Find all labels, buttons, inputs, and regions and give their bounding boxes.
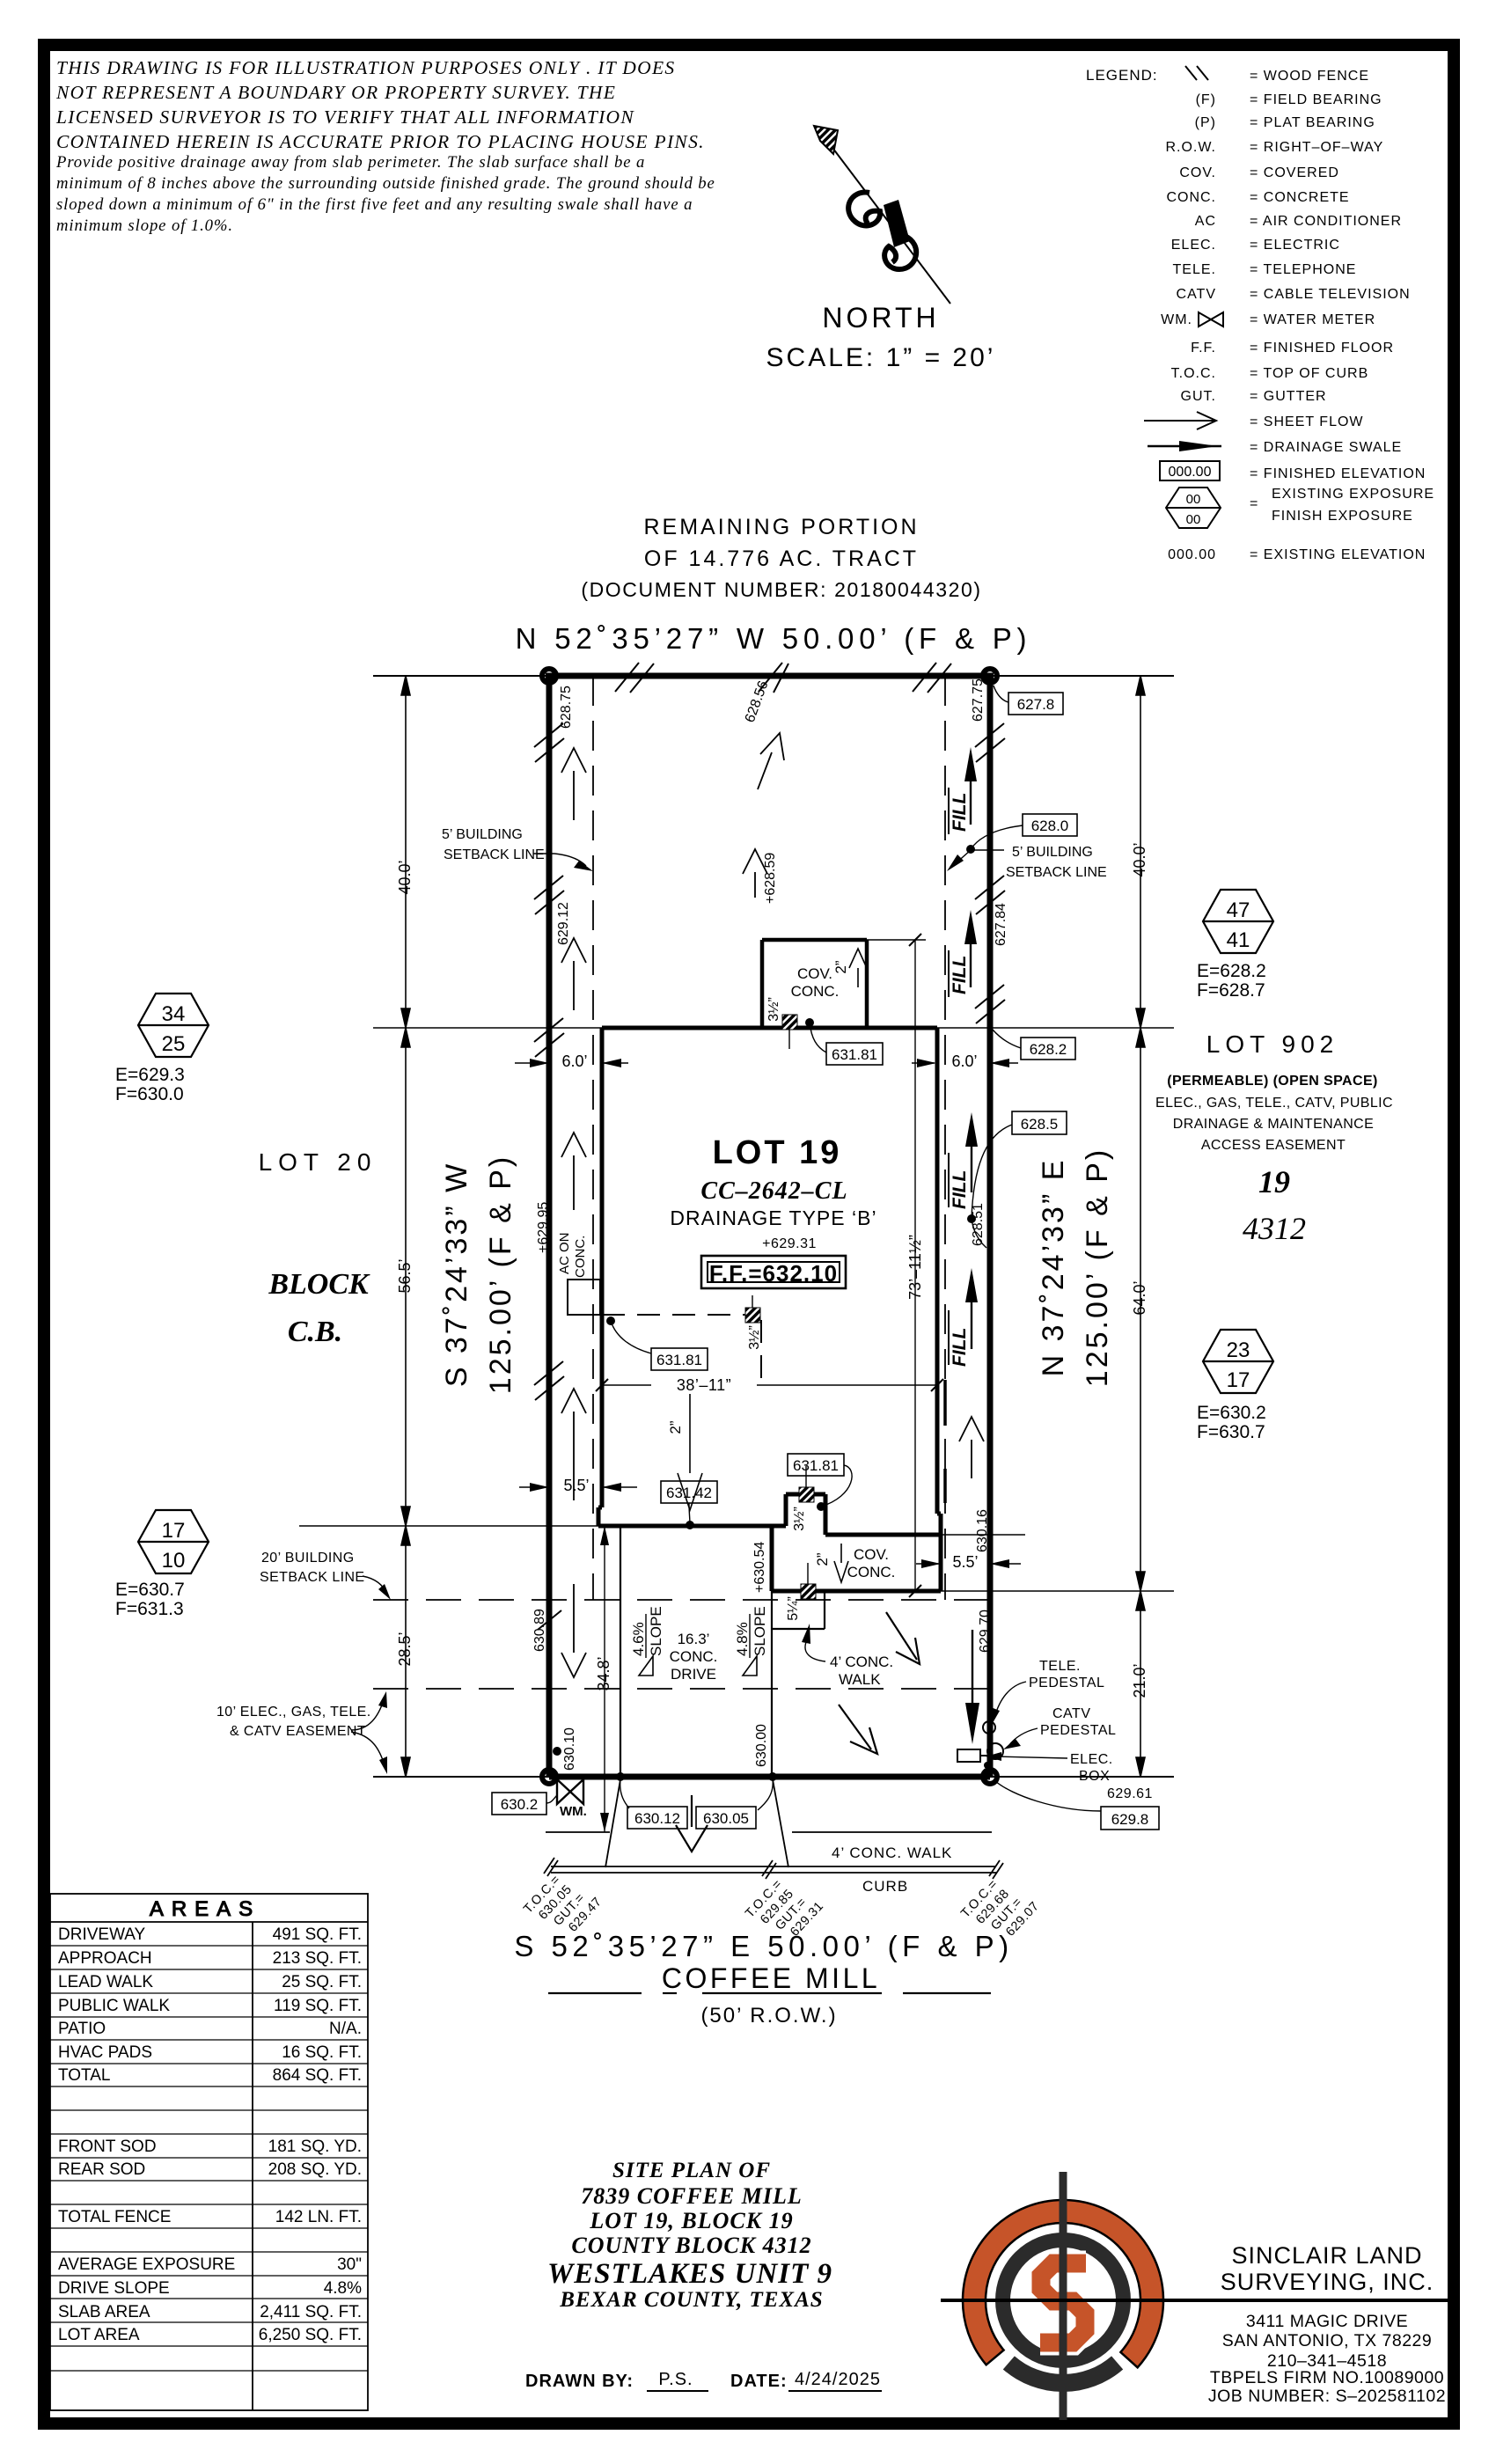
svg-text:=: = xyxy=(1250,496,1258,511)
svg-text:S 52˚35’27” E 50.00’ (F &: S 52˚35’27” E 50.00’ (F & P) xyxy=(514,1930,1013,1962)
svg-text:= CABLE TELEVISION: = CABLE TELEVISION xyxy=(1250,287,1411,302)
svg-text:19: 19 xyxy=(1258,1164,1290,1199)
svg-text:F=631.3: F=631.3 xyxy=(115,1599,184,1619)
svg-text:sloped down a minimum of 6" in: sloped down a minimum of 6" in the first… xyxy=(56,195,693,214)
svg-text:WESTLAKES UNIT 9: WESTLAKES UNIT 9 xyxy=(547,2258,832,2290)
svg-text:2”: 2” xyxy=(832,960,849,973)
svg-text:F=630.7: F=630.7 xyxy=(1197,1422,1265,1442)
svg-text:COV.: COV. xyxy=(854,1546,889,1563)
svg-text:= SHEET FLOW: = SHEET FLOW xyxy=(1250,414,1364,429)
svg-text:CATV: CATV xyxy=(1177,287,1216,302)
svg-text:AVERAGE EXPOSURE: AVERAGE EXPOSURE xyxy=(58,2255,235,2274)
svg-text:ELEC.: ELEC. xyxy=(1070,1752,1113,1767)
svg-text:(DOCUMENT NUMBER: 2018004432: (DOCUMENT NUMBER: 20180044320) xyxy=(581,578,981,601)
svg-text:EXISTING EXPOSURE: EXISTING EXPOSURE xyxy=(1272,487,1434,502)
svg-text:34.8’: 34.8’ xyxy=(595,1656,612,1690)
svg-text:CONC.: CONC. xyxy=(670,1648,718,1665)
svg-text:= AIR CONDITIONER: = AIR CONDITIONER xyxy=(1250,214,1402,229)
svg-text:WM.: WM. xyxy=(1161,312,1192,327)
svg-text:FILL: FILL xyxy=(950,956,970,994)
svg-text:= WATER METER: = WATER METER xyxy=(1250,312,1375,327)
svg-text:21.0’: 21.0’ xyxy=(1131,1663,1148,1698)
svg-text:4’ CONC.: 4’ CONC. xyxy=(830,1654,893,1670)
svg-text:142 LN. FT.: 142 LN. FT. xyxy=(275,2208,362,2226)
svg-text:E=630.2: E=630.2 xyxy=(1197,1403,1266,1423)
svg-text:= WOOD FENCE: = WOOD FENCE xyxy=(1250,69,1369,84)
svg-text:10’ ELEC., GAS, TELE.: 10’ ELEC., GAS, TELE. xyxy=(216,1705,371,1720)
svg-text:4.8%: 4.8% xyxy=(734,1622,751,1656)
svg-text:CC–2642–CL: CC–2642–CL xyxy=(700,1177,847,1205)
svg-text:WALK: WALK xyxy=(839,1671,881,1688)
svg-text:491 SQ. FT.: 491 SQ. FT. xyxy=(273,1925,362,1944)
svg-text:= PLAT BEARING: = PLAT BEARING xyxy=(1250,115,1375,130)
svg-text:(50’ R.O.W.): (50’ R.O.W.) xyxy=(700,2004,837,2028)
svg-text:DATE:: DATE: xyxy=(730,2372,788,2391)
svg-text:AC ON: AC ON xyxy=(557,1232,572,1274)
svg-text:00: 00 xyxy=(1186,512,1201,527)
svg-text:3½”: 3½” xyxy=(792,1507,807,1531)
svg-text:17: 17 xyxy=(162,1519,186,1543)
svg-text:BLOCK: BLOCK xyxy=(268,1268,370,1301)
svg-text:CONC.: CONC. xyxy=(791,983,840,1000)
svg-text:629.70: 629.70 xyxy=(978,1610,993,1653)
svg-text:25 SQ. FT.: 25 SQ. FT. xyxy=(282,1973,362,1991)
svg-text:SETBACK LINE: SETBACK LINE xyxy=(444,847,545,862)
svg-text:6,250 SQ. FT.: 6,250 SQ. FT. xyxy=(259,2326,362,2344)
svg-text:SLAB AREA: SLAB AREA xyxy=(58,2303,150,2321)
svg-text:213 SQ. FT.: 213 SQ. FT. xyxy=(273,1949,362,1968)
svg-text:TOTAL FENCE: TOTAL FENCE xyxy=(58,2208,171,2226)
svg-text:LOT 20: LOT 20 xyxy=(259,1148,378,1176)
svg-text:6.0’: 6.0’ xyxy=(951,1052,977,1070)
svg-text:+629.95: +629.95 xyxy=(536,1202,551,1253)
svg-text:5’ BUILDING: 5’ BUILDING xyxy=(442,827,523,842)
svg-text:627.75: 627.75 xyxy=(971,678,986,722)
svg-text:= EXISTING ELEVATION: = EXISTING ELEVATION xyxy=(1250,547,1426,562)
svg-text:CATV: CATV xyxy=(1052,1706,1090,1721)
svg-text:BEXAR COUNTY, TEXAS: BEXAR COUNTY, TEXAS xyxy=(559,2288,823,2312)
svg-text:631.81: 631.81 xyxy=(832,1046,877,1063)
svg-text:SITE PLAN OF: SITE PLAN OF xyxy=(612,2159,771,2182)
svg-text:ACCESS EASEMENT: ACCESS EASEMENT xyxy=(1201,1138,1346,1153)
svg-text:630.05: 630.05 xyxy=(703,1810,749,1827)
svg-text:DRIVE: DRIVE xyxy=(671,1666,716,1683)
svg-text:N 52˚35’27” W 50.00’ (F &: N 52˚35’27” W 50.00’ (F & P) xyxy=(516,622,1032,655)
svg-text:AC: AC xyxy=(1195,214,1216,229)
svg-text:73’–11½”: 73’–11½” xyxy=(906,1235,924,1300)
svg-text:630.2: 630.2 xyxy=(501,1796,539,1813)
svg-text:E=629.3: E=629.3 xyxy=(115,1065,185,1085)
svg-text:F=630.0: F=630.0 xyxy=(115,1084,184,1104)
svg-text:LOT 902: LOT 902 xyxy=(1206,1030,1338,1058)
svg-text:GUT.: GUT. xyxy=(1181,389,1216,404)
svg-text:208 SQ. YD.: 208 SQ. YD. xyxy=(268,2160,362,2179)
svg-text:PATIO: PATIO xyxy=(58,2020,106,2038)
svg-text:TELE.: TELE. xyxy=(1173,262,1216,277)
svg-text:E=628.2: E=628.2 xyxy=(1197,961,1266,981)
svg-text:+630.54: +630.54 xyxy=(752,1542,767,1593)
svg-text:N 37˚24’33” E: N 37˚24’33” E xyxy=(1037,1158,1070,1377)
svg-text:LICENSED SURVEYOR IS TO VERIFY: LICENSED SURVEYOR IS TO VERIFY THAT ALL … xyxy=(55,106,634,128)
svg-text:16.3’: 16.3’ xyxy=(678,1631,710,1647)
svg-text:TOTAL: TOTAL xyxy=(58,2066,110,2085)
svg-text:DRAINAGE & MAINTENANCE: DRAINAGE & MAINTENANCE xyxy=(1173,1117,1374,1132)
svg-text:minimum slope of 1.0%.: minimum slope of 1.0%. xyxy=(56,216,233,235)
svg-text:REAR SOD: REAR SOD xyxy=(58,2160,145,2179)
svg-text:N/A.: N/A. xyxy=(329,2020,362,2038)
svg-text:SLOPE: SLOPE xyxy=(752,1606,768,1656)
svg-text:PEDESTAL: PEDESTAL xyxy=(1029,1676,1104,1690)
svg-text:WM.: WM. xyxy=(560,1804,587,1819)
svg-text:3½”: 3½” xyxy=(747,1325,762,1350)
svg-text:56.5’: 56.5’ xyxy=(396,1258,414,1293)
svg-text:F.F.: F.F. xyxy=(1191,341,1216,356)
svg-text:AREAS: AREAS xyxy=(150,1897,260,1921)
svg-text:= FINISHED ELEVATION: = FINISHED ELEVATION xyxy=(1250,466,1426,481)
svg-text:REMAINING PORTION: REMAINING PORTION xyxy=(643,515,919,539)
svg-text:000.00: 000.00 xyxy=(1169,465,1212,480)
svg-text:4/24/2025: 4/24/2025 xyxy=(795,2370,881,2389)
svg-text:23: 23 xyxy=(1227,1338,1250,1362)
svg-text:minimum of 8 inches above the: minimum of 8 inches above the surroundin… xyxy=(56,174,715,193)
svg-text:SAN ANTONIO, TX 78229: SAN ANTONIO, TX 78229 xyxy=(1222,2331,1432,2350)
svg-text:5.5’: 5.5’ xyxy=(563,1477,589,1494)
svg-text:64.0’: 64.0’ xyxy=(1131,1280,1148,1315)
svg-text:3411 MAGIC DRIVE: 3411 MAGIC DRIVE xyxy=(1246,2312,1408,2331)
svg-text:000.00: 000.00 xyxy=(1168,547,1216,562)
svg-text:(P): (P) xyxy=(1195,115,1216,130)
svg-text:628.0: 628.0 xyxy=(1031,818,1069,834)
svg-text:LOT AREA: LOT AREA xyxy=(58,2326,140,2344)
svg-text:F=628.7: F=628.7 xyxy=(1197,980,1265,1001)
svg-text:JOB NUMBER: S–202581102: JOB NUMBER: S–202581102 xyxy=(1208,2387,1446,2406)
svg-text:630.12: 630.12 xyxy=(634,1810,680,1827)
svg-text:630.89: 630.89 xyxy=(532,1609,547,1652)
svg-text:SLOPE: SLOPE xyxy=(648,1606,664,1656)
svg-text:4.8%: 4.8% xyxy=(324,2279,362,2298)
svg-text:APPROACH: APPROACH xyxy=(58,1949,152,1968)
svg-text:FINISH EXPOSURE: FINISH EXPOSURE xyxy=(1272,509,1413,524)
svg-text:ELEC., GAS, TELE., CATV, P: ELEC., GAS, TELE., CATV, PUBLIC xyxy=(1155,1096,1393,1111)
svg-text:= TOP OF CURB: = TOP OF CURB xyxy=(1250,366,1368,381)
svg-text:ELEC.: ELEC. xyxy=(1171,238,1216,253)
svg-text:630.10: 630.10 xyxy=(562,1727,577,1771)
svg-text:(F): (F) xyxy=(1196,92,1216,107)
svg-text:629.8: 629.8 xyxy=(1111,1811,1149,1828)
svg-text:CONC.: CONC. xyxy=(1166,190,1216,205)
svg-text:= CONCRETE: = CONCRETE xyxy=(1250,190,1350,205)
svg-text:NORTH: NORTH xyxy=(822,302,939,334)
svg-text:627.84: 627.84 xyxy=(994,903,1008,946)
svg-text:34: 34 xyxy=(162,1002,186,1026)
svg-text:F.F.=632.10: F.F.=632.10 xyxy=(709,1260,838,1287)
svg-text:BOX: BOX xyxy=(1079,1769,1110,1784)
svg-text:627.8: 627.8 xyxy=(1017,696,1055,713)
svg-text:5¼”: 5¼” xyxy=(786,1596,801,1621)
svg-text:FILL: FILL xyxy=(950,793,970,832)
svg-text:181 SQ. YD.: 181 SQ. YD. xyxy=(268,2138,362,2156)
svg-text:38’–11”: 38’–11” xyxy=(677,1376,731,1394)
svg-text:+628.59: +628.59 xyxy=(763,853,778,904)
svg-text:17: 17 xyxy=(1227,1368,1250,1392)
svg-text:R.O.W.: R.O.W. xyxy=(1165,140,1216,155)
svg-text:40.0’: 40.0’ xyxy=(1131,842,1148,876)
svg-text:(PERMEABLE) (OPEN SPACE): (PERMEABLE) (OPEN SPACE) xyxy=(1167,1074,1378,1089)
svg-text:16 SQ. FT.: 16 SQ. FT. xyxy=(282,2043,362,2062)
svg-text:C.B.: C.B. xyxy=(288,1316,342,1348)
svg-text:= GUTTER: = GUTTER xyxy=(1250,389,1327,404)
svg-text:6.0’: 6.0’ xyxy=(561,1052,587,1070)
svg-text:Provide positive drainage away: Provide positive drainage away from slab… xyxy=(55,153,645,172)
svg-text:DRAWN BY:: DRAWN BY: xyxy=(525,2372,634,2391)
svg-text:30": 30" xyxy=(337,2255,362,2274)
svg-text:LOT 19: LOT 19 xyxy=(713,1134,842,1171)
svg-text:125.00’ (F & P): 125.00’ (F & P) xyxy=(484,1155,517,1394)
svg-text:LEAD WALK: LEAD WALK xyxy=(58,1973,153,1991)
svg-text:4.6%: 4.6% xyxy=(630,1622,647,1656)
svg-text:= TELEPHONE: = TELEPHONE xyxy=(1250,262,1356,277)
svg-text:E=630.7: E=630.7 xyxy=(115,1580,185,1600)
svg-text:+629.31: +629.31 xyxy=(762,1236,817,1251)
svg-text:629.61: 629.61 xyxy=(1107,1786,1153,1801)
svg-text:COV.: COV. xyxy=(797,965,832,982)
svg-text:2,411 SQ. FT.: 2,411 SQ. FT. xyxy=(260,2303,362,2321)
svg-text:= DRAINAGE SWALE: = DRAINAGE SWALE xyxy=(1250,440,1402,455)
svg-text:10: 10 xyxy=(162,1549,186,1573)
svg-text:HVAC PADS: HVAC PADS xyxy=(58,2043,152,2062)
svg-text:628.75: 628.75 xyxy=(559,686,574,729)
svg-text:FILL: FILL xyxy=(950,1170,970,1209)
svg-text:DRIVEWAY: DRIVEWAY xyxy=(58,1925,146,1944)
svg-text:THIS DRAWING IS FOR ILLUSTRATI: THIS DRAWING IS FOR ILLUSTRATION PURPOSE… xyxy=(56,57,675,78)
svg-text:S 37˚24’33” W: S 37˚24’33” W xyxy=(440,1162,473,1387)
svg-text:2”: 2” xyxy=(814,1552,831,1566)
svg-text:7839 COFFEE MILL: 7839 COFFEE MILL xyxy=(581,2183,803,2209)
svg-text:PEDESTAL: PEDESTAL xyxy=(1040,1723,1116,1738)
svg-text:= COVERED: = COVERED xyxy=(1250,165,1339,180)
svg-text:CURB: CURB xyxy=(862,1878,908,1895)
svg-text:41: 41 xyxy=(1227,928,1250,952)
svg-text:631.42: 631.42 xyxy=(666,1485,712,1501)
svg-text:= FINISHED FLOOR: = FINISHED FLOOR xyxy=(1250,341,1394,356)
svg-text:5’ BUILDING: 5’ BUILDING xyxy=(1012,845,1093,860)
svg-text:864 SQ. FT.: 864 SQ. FT. xyxy=(273,2066,362,2085)
svg-text:628.5: 628.5 xyxy=(1021,1116,1059,1133)
svg-text:DRAINAGE TYPE ‘B’: DRAINAGE TYPE ‘B’ xyxy=(670,1206,876,1229)
svg-text:P.S.: P.S. xyxy=(658,2370,693,2389)
svg-text:SURVEYING, INC.: SURVEYING, INC. xyxy=(1221,2269,1434,2295)
svg-text:630.16: 630.16 xyxy=(975,1509,990,1552)
svg-text:TELE.: TELE. xyxy=(1039,1659,1081,1674)
svg-text:DRIVE SLOPE: DRIVE SLOPE xyxy=(58,2279,170,2298)
svg-text:25: 25 xyxy=(162,1032,186,1056)
svg-text:631.81: 631.81 xyxy=(793,1457,839,1474)
svg-text:CONC.: CONC. xyxy=(847,1564,896,1580)
svg-text:= ELECTRIC: = ELECTRIC xyxy=(1250,238,1340,253)
svg-text:T.O.C.: T.O.C. xyxy=(1171,366,1216,381)
svg-text:00: 00 xyxy=(1186,492,1201,507)
svg-text:47: 47 xyxy=(1227,898,1250,922)
svg-text:3½”: 3½” xyxy=(766,997,781,1022)
svg-text:= FIELD BEARING: = FIELD BEARING xyxy=(1250,92,1382,107)
svg-text:40.0’: 40.0’ xyxy=(396,860,414,894)
svg-text:COV.: COV. xyxy=(1179,165,1216,180)
svg-text:20’ BUILDING: 20’ BUILDING xyxy=(261,1551,355,1566)
svg-text:FRONT SOD: FRONT SOD xyxy=(58,2138,157,2156)
svg-text:119 SQ. FT.: 119 SQ. FT. xyxy=(274,1997,362,2015)
svg-text:628.2: 628.2 xyxy=(1030,1041,1067,1058)
svg-text:5.5’: 5.5’ xyxy=(952,1553,978,1571)
svg-text:= RIGHT–OF–WAY: = RIGHT–OF–WAY xyxy=(1250,140,1383,155)
svg-text:SETBACK LINE: SETBACK LINE xyxy=(260,1570,365,1585)
svg-text:630.00: 630.00 xyxy=(754,1724,769,1767)
svg-text:LEGEND:: LEGEND: xyxy=(1086,67,1158,84)
svg-text:COUNTY BLOCK 4312: COUNTY BLOCK 4312 xyxy=(571,2233,811,2258)
svg-text:SCALE: 1” = 20’: SCALE: 1” = 20’ xyxy=(766,343,996,372)
svg-text:& CATV EASEMENT: & CATV EASEMENT xyxy=(230,1724,366,1739)
svg-text:631.81: 631.81 xyxy=(656,1352,702,1368)
svg-text:28.5’: 28.5’ xyxy=(396,1632,414,1666)
svg-text:NOT REPRESENT A BOUNDARY OR PR: NOT REPRESENT A BOUNDARY OR PROPERTY SUR… xyxy=(55,82,616,103)
svg-text:125.00’ (F & P): 125.00’ (F & P) xyxy=(1081,1148,1114,1387)
svg-text:SINCLAIR LAND: SINCLAIR LAND xyxy=(1231,2242,1422,2269)
svg-text:2”: 2” xyxy=(667,1420,684,1434)
svg-text:FILL: FILL xyxy=(950,1328,970,1367)
svg-text:CONC.: CONC. xyxy=(573,1236,588,1278)
svg-text:SETBACK LINE: SETBACK LINE xyxy=(1006,865,1107,880)
svg-text:TBPELS FIRM NO.10089000: TBPELS FIRM NO.10089000 xyxy=(1210,2368,1444,2387)
svg-text:COFFEE MILL: COFFEE MILL xyxy=(662,1962,880,1994)
svg-text:CONTAINED HEREIN IS ACCURATE P: CONTAINED HEREIN IS ACCURATE PRIOR TO PL… xyxy=(56,131,705,152)
svg-text:4312: 4312 xyxy=(1243,1211,1306,1246)
svg-text:PUBLIC WALK: PUBLIC WALK xyxy=(58,1997,170,2015)
svg-text:4’ CONC. WALK: 4’ CONC. WALK xyxy=(832,1844,952,1861)
svg-text:LOT 19, BLOCK 19: LOT 19, BLOCK 19 xyxy=(589,2208,793,2233)
svg-text:629.12: 629.12 xyxy=(556,902,571,945)
svg-text:OF 14.776 AC. TRACT: OF 14.776 AC. TRACT xyxy=(644,546,919,571)
